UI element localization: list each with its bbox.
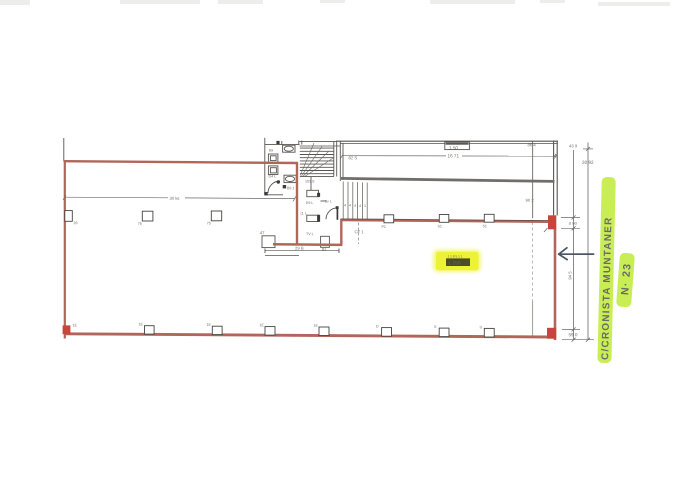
svg-text:TV L: TV L [306, 232, 314, 236]
svg-text:101 S: 101 S [305, 179, 315, 183]
svg-text:82 S: 82 S [349, 155, 358, 160]
svg-text:29 B: 29 B [295, 246, 304, 251]
svg-text:59 0: 59 0 [568, 332, 577, 337]
svg-text:N· 23: N· 23 [619, 262, 633, 295]
svg-text:1E: 1E [138, 322, 143, 326]
svg-text:E9 L: E9 L [306, 201, 313, 205]
svg-text:86 4: 86 4 [528, 142, 537, 147]
svg-text:89: 89 [269, 148, 273, 152]
svg-text:1E: 1E [313, 324, 318, 328]
svg-text:D4 L: D4 L [269, 174, 277, 178]
svg-text:26: 26 [74, 221, 78, 225]
svg-text:0 90: 0 90 [569, 221, 578, 226]
svg-text:4: 4 [354, 204, 356, 208]
svg-text:75: 75 [138, 222, 142, 226]
svg-text:30 92: 30 92 [582, 160, 594, 165]
svg-text:(1 L: (1 L [301, 211, 307, 215]
svg-text:S1: S1 [438, 224, 442, 228]
svg-text:4: 4 [349, 204, 351, 208]
svg-text:CF 1: CF 1 [355, 229, 365, 234]
svg-text:4: 4 [344, 204, 346, 208]
svg-text:1E: 1E [206, 323, 211, 327]
svg-text:1E: 1E [72, 323, 77, 327]
svg-text:1 50: 1 50 [449, 145, 458, 150]
svg-text:47: 47 [260, 230, 265, 235]
svg-text:43 9: 43 9 [569, 143, 578, 148]
svg-text:1E: 1E [259, 323, 264, 327]
svg-text:B1: B1 [322, 247, 326, 251]
svg-text:16 71: 16 71 [448, 153, 460, 158]
svg-text:D: D [376, 325, 379, 329]
svg-text:B9 1: B9 1 [287, 186, 294, 190]
svg-text:4: 4 [359, 204, 361, 208]
svg-text:75: 75 [207, 221, 211, 225]
svg-text:L 250: L 250 [449, 260, 461, 265]
svg-text:5v L: 5v L [325, 199, 332, 203]
svg-text:90 2: 90 2 [526, 198, 535, 203]
svg-text:P1: P1 [382, 225, 386, 229]
svg-text:1: 1 [364, 204, 366, 208]
svg-text:94 5: 94 5 [567, 271, 572, 280]
svg-text:30 ks: 30 ks [170, 196, 180, 201]
svg-text:S1: S1 [483, 224, 487, 228]
svg-text:1 1 8 5 1 1: 1 1 8 5 1 1 [448, 254, 463, 258]
